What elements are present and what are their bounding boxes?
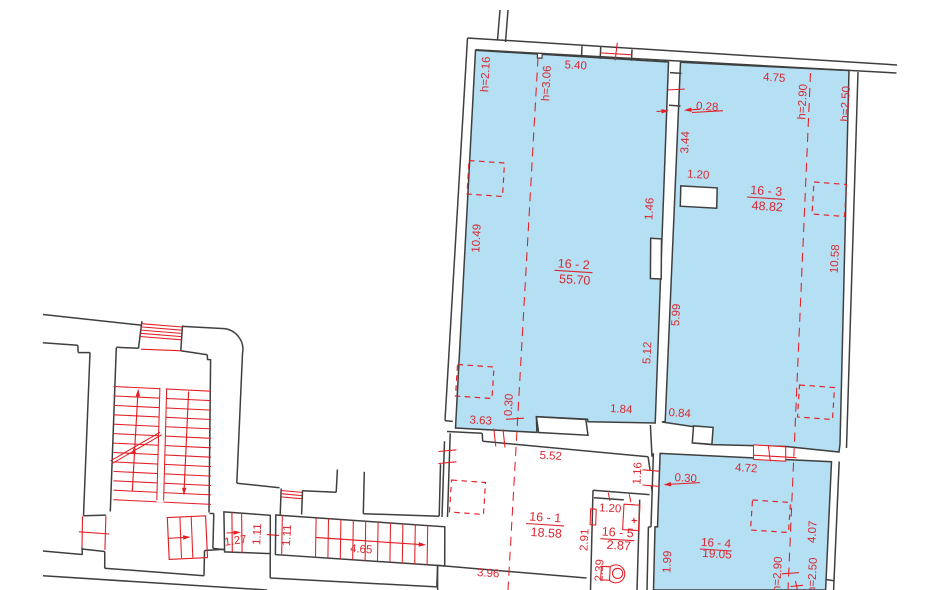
svg-text:3.96: 3.96 bbox=[477, 567, 500, 580]
svg-text:3.63: 3.63 bbox=[469, 414, 492, 427]
svg-text:4.65: 4.65 bbox=[350, 543, 373, 556]
svg-text:h=2.16: h=2.16 bbox=[479, 56, 493, 92]
svg-text:4.07: 4.07 bbox=[806, 520, 819, 543]
svg-text:2.91: 2.91 bbox=[578, 528, 591, 551]
svg-text:5.40: 5.40 bbox=[564, 59, 587, 72]
svg-text:10.58: 10.58 bbox=[829, 244, 842, 273]
svg-text:h=3.06: h=3.06 bbox=[540, 65, 554, 101]
svg-text:1.46: 1.46 bbox=[643, 197, 656, 220]
svg-text:h=2.50: h=2.50 bbox=[806, 557, 820, 590]
svg-text:0.28: 0.28 bbox=[696, 101, 719, 114]
svg-text:1.16: 1.16 bbox=[631, 462, 644, 485]
svg-text:h=2.90: h=2.90 bbox=[771, 556, 785, 590]
svg-text:1.11: 1.11 bbox=[281, 524, 294, 546]
svg-text:19.05: 19.05 bbox=[702, 546, 733, 562]
svg-text:16 - 2: 16 - 2 bbox=[557, 256, 590, 272]
svg-text:h=2.90: h=2.90 bbox=[796, 84, 810, 120]
svg-text:5.52: 5.52 bbox=[539, 450, 562, 463]
svg-text:0.30: 0.30 bbox=[503, 393, 516, 416]
svg-text:1.99: 1.99 bbox=[661, 550, 674, 573]
svg-text:5.12: 5.12 bbox=[641, 341, 654, 364]
svg-text:16 - 1: 16 - 1 bbox=[529, 510, 562, 526]
svg-text:55.70: 55.70 bbox=[559, 272, 591, 288]
svg-text:1.11: 1.11 bbox=[251, 523, 264, 545]
svg-text:4.75: 4.75 bbox=[763, 72, 786, 85]
svg-text:h=2.50: h=2.50 bbox=[839, 86, 853, 122]
svg-text:2.39: 2.39 bbox=[593, 559, 606, 582]
svg-text:5.99: 5.99 bbox=[670, 303, 683, 326]
svg-text:16 - 3: 16 - 3 bbox=[750, 183, 783, 199]
svg-text:0.84: 0.84 bbox=[668, 407, 692, 420]
svg-text:4.72: 4.72 bbox=[735, 462, 758, 475]
svg-text:2.87: 2.87 bbox=[606, 538, 631, 553]
svg-text:48.82: 48.82 bbox=[751, 199, 783, 215]
svg-text:1.20: 1.20 bbox=[599, 502, 622, 515]
svg-text:18.58: 18.58 bbox=[530, 525, 562, 541]
svg-text:1.20: 1.20 bbox=[687, 169, 710, 182]
svg-text:1.84: 1.84 bbox=[610, 403, 634, 416]
svg-text:10.49: 10.49 bbox=[470, 224, 483, 253]
svg-text:0.30: 0.30 bbox=[674, 472, 697, 485]
svg-text:3.44: 3.44 bbox=[679, 130, 692, 154]
